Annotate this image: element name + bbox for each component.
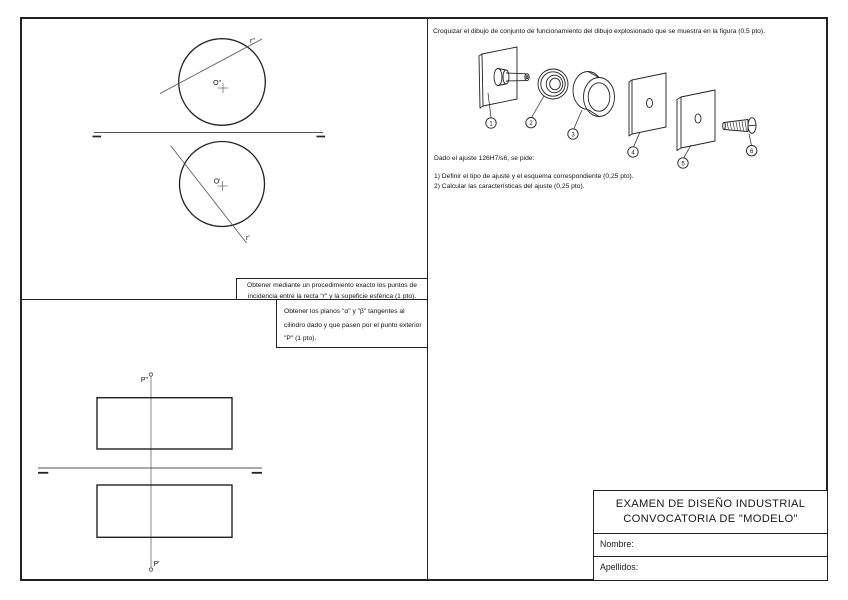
balloon-2: 2 [526,118,536,128]
exam-title-line1: EXAMEN DE DISEÑO INDUSTRIAL [594,497,827,512]
screw-slot [748,125,755,126]
label-p-double-prime: P" [141,377,149,384]
fit-item-2: 2) Calcular las características del ajus… [434,182,794,192]
part-4-thin-plate [629,73,666,147]
fit-intro-text: Dado el ajuste 126H7/s6, se pide: [434,154,734,165]
leader-4 [634,132,640,147]
part-5-plate [677,90,715,158]
point-p-vertical-marker [149,373,152,376]
sphere-vertical-projection-circle [179,39,266,126]
assembly-task-text: Croquizar el dibujo de conjunto de funci… [433,27,825,38]
cylinder-vertical-projection-rect [97,398,232,449]
sphere-horizontal-projection-circle [180,142,265,227]
part-6-screw [723,118,756,146]
balloon-3: 3 [568,129,578,139]
title-block-header: EXAMEN DE DISEÑO INDUSTRIAL CONVOCATORIA… [594,491,827,534]
balloon-6: 6 [747,146,757,156]
surname-label: Apellidos: [600,562,638,572]
cylinder-horizontal-projection-rect [97,485,232,537]
sphere-projection-drawing: r" O" r' O' [20,17,428,300]
sphere-task-box: Obtener mediante un procedimiento exacto… [236,278,428,300]
balloon-1: 1 [486,118,496,128]
point-p-horizontal-marker [149,568,152,571]
leader-2 [532,96,545,118]
leader-3 [574,110,582,129]
exam-title-line2: CONVOCATORIA DE "MODELO" [594,512,827,527]
line-r-vertical-projection [160,39,262,94]
cylinder-projection-drawing: P" P' [20,300,428,581]
leader-6 [749,134,752,146]
title-block: EXAMEN DE DISEÑO INDUSTRIAL CONVOCATORIA… [593,490,828,581]
label-p-prime: P' [154,561,160,568]
label-o-prime: O' [214,179,221,186]
label-o-double-prime: O" [213,80,221,87]
name-label: Nombre: [600,539,634,549]
exam-sheet: r" O" r' O' Obtener mediante un procedim… [0,0,848,600]
fit-item-1: 1) Definir el tipo de ajuste y el esquem… [434,172,794,182]
name-field-row: Nombre: [594,534,827,557]
part-1-shaft-plate [479,47,529,118]
part-2-bearing [532,69,569,118]
surname-field-row: Apellidos: [594,557,827,581]
label-r-double-prime: r" [250,38,255,45]
label-r-prime: r' [246,235,250,242]
fit-items: 1) Definir el tipo de ajuste y el esquem… [434,172,794,192]
line-r-horizontal-projection [171,146,247,244]
part-3-roller [573,72,615,129]
